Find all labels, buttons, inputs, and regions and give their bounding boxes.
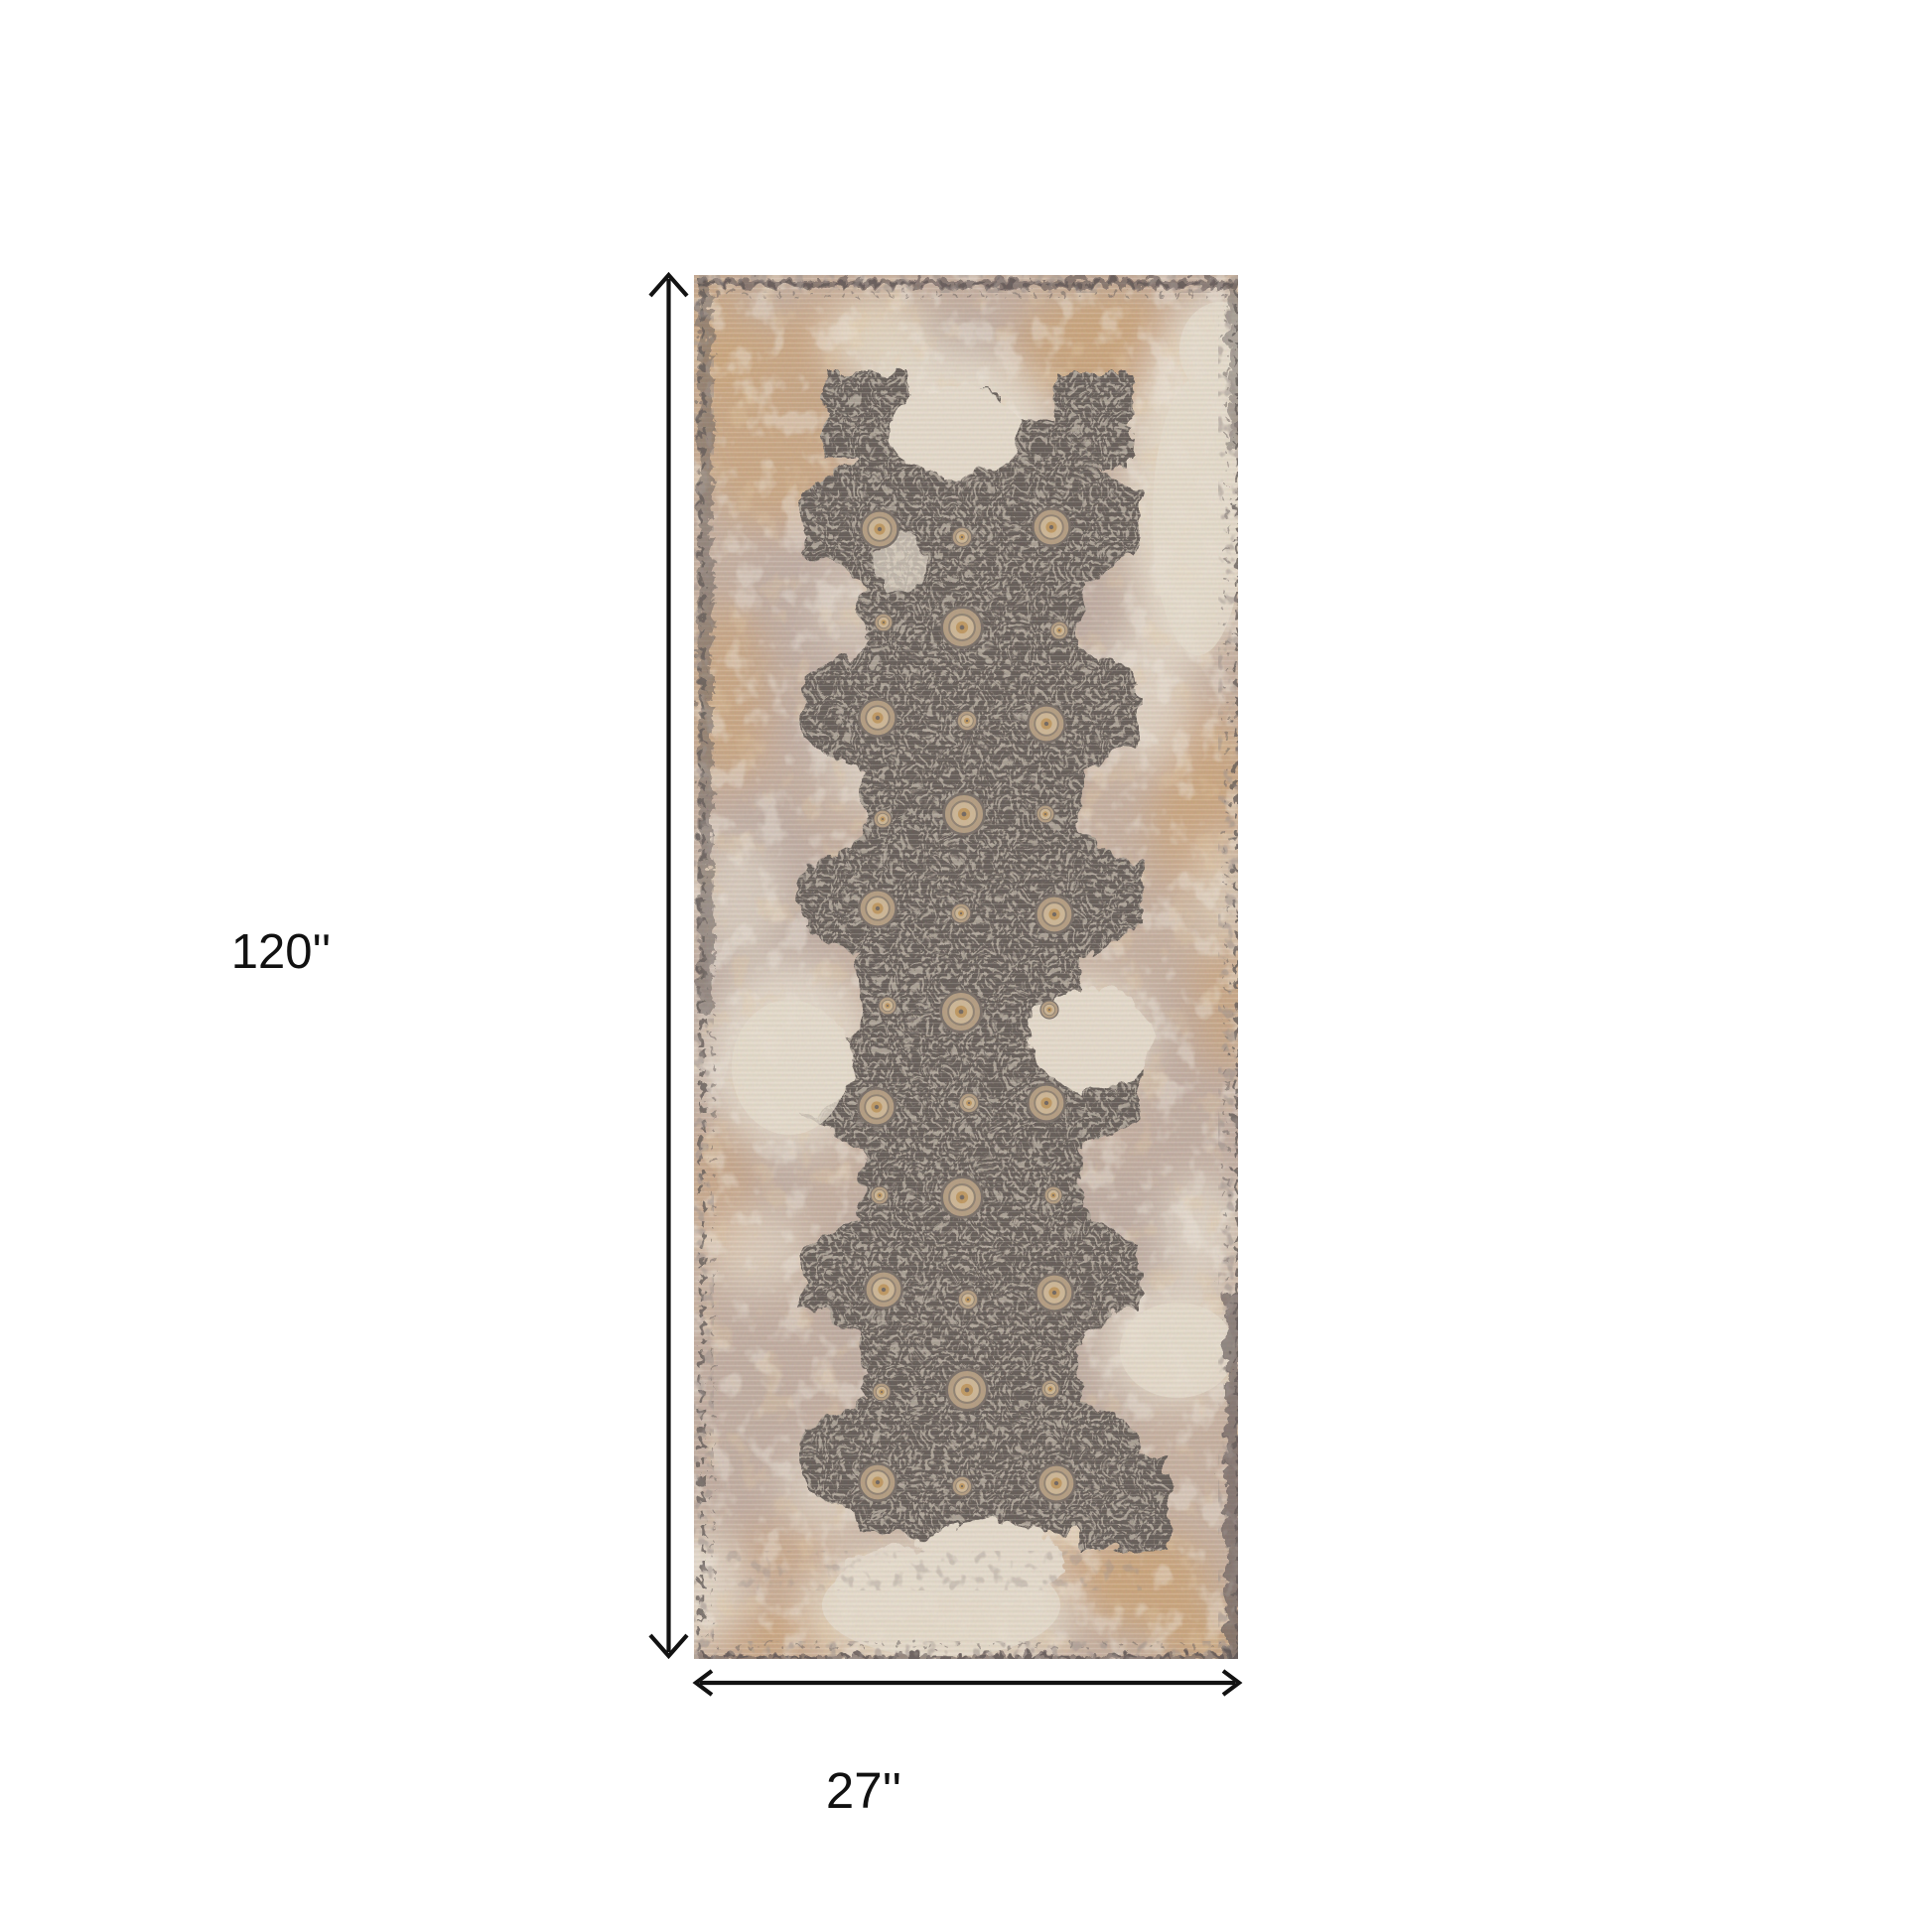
svg-text:120'': 120'' [231,925,331,979]
svg-text:27'': 27'' [826,1762,901,1819]
